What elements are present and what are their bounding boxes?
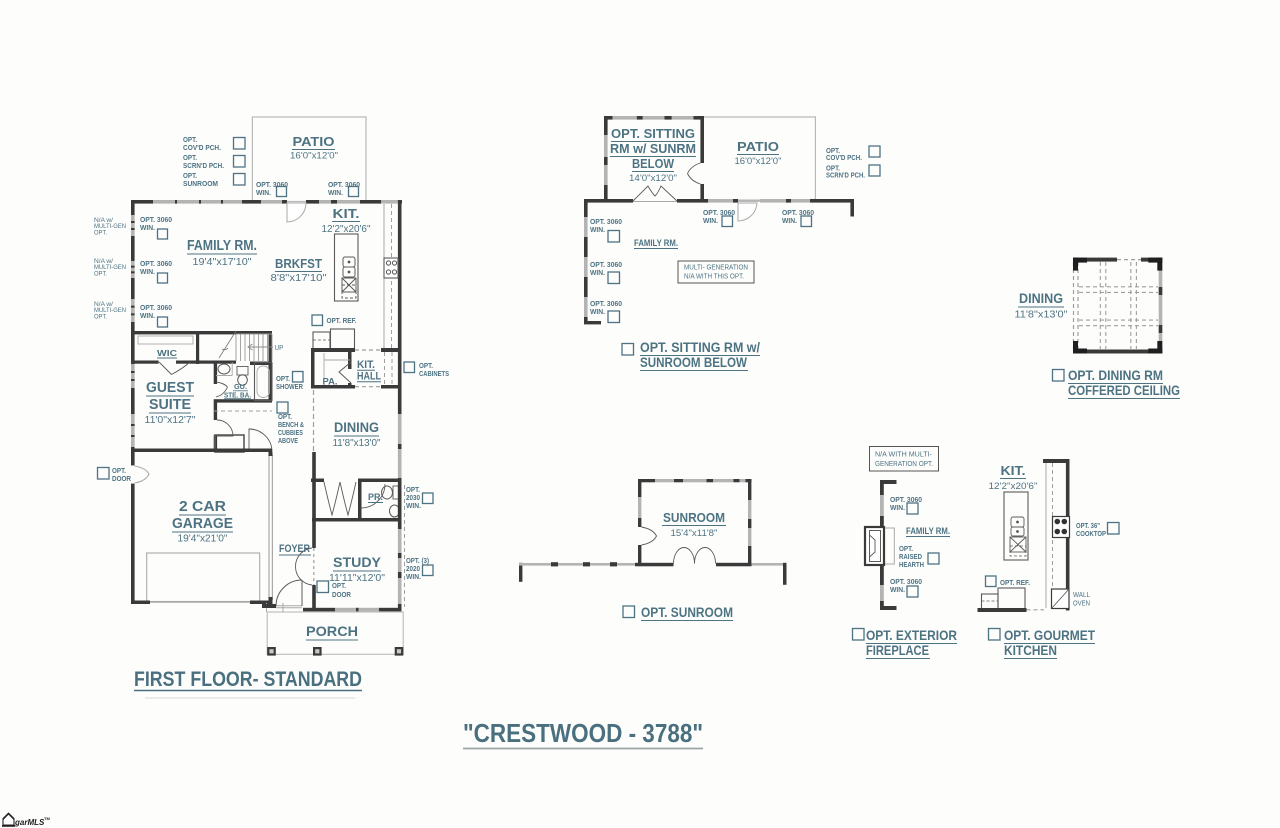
svg-text:OPT.: OPT.: [332, 581, 346, 590]
svg-text:STE. BA.: STE. BA.: [224, 390, 251, 399]
svg-text:FOYER: FOYER: [279, 543, 310, 555]
svg-text:PATIO: PATIO: [293, 134, 335, 149]
svg-text:FAMILY RM.: FAMILY RM.: [634, 238, 678, 249]
svg-text:COOKTOP: COOKTOP: [1076, 529, 1106, 538]
svg-text:WIN.: WIN.: [328, 188, 343, 197]
svg-text:WIN.: WIN.: [890, 503, 905, 512]
svg-text:WIN.: WIN.: [406, 572, 421, 581]
svg-text:OPT. REF.: OPT. REF.: [1000, 578, 1030, 587]
svg-text:"CRESTWOOD - 3788": "CRESTWOOD - 3788": [463, 718, 703, 748]
svg-text:CABINETS: CABINETS: [419, 369, 449, 378]
svg-text:WIN.: WIN.: [140, 267, 155, 276]
svg-text:DOOR: DOOR: [332, 590, 351, 599]
svg-text:WIN.: WIN.: [590, 268, 605, 277]
svg-text:N/A WITH MULTI-: N/A WITH MULTI-: [875, 452, 933, 459]
svg-text:HEARTH: HEARTH: [899, 560, 924, 569]
svg-text:OPT.: OPT.: [94, 313, 107, 320]
svg-text:PR.: PR.: [368, 492, 383, 502]
svg-text:COV'D PCH.: COV'D PCH.: [826, 153, 862, 162]
svg-text:COV'D PCH.: COV'D PCH.: [183, 143, 221, 152]
svg-text:OPT. EXTERIOR: OPT. EXTERIOR: [866, 627, 957, 643]
svg-text:BELOW: BELOW: [632, 156, 675, 171]
svg-text:SCRN'D PCH.: SCRN'D PCH.: [826, 171, 865, 180]
svg-text:PATIO: PATIO: [737, 139, 779, 154]
svg-text:SHOWER: SHOWER: [276, 382, 303, 391]
svg-text:FIREPLACE: FIREPLACE: [866, 642, 929, 658]
svg-text:DINING: DINING: [1019, 290, 1063, 306]
svg-text:RM w/ SUNRM: RM w/ SUNRM: [610, 141, 696, 156]
svg-text:WIN.: WIN.: [406, 501, 421, 510]
svg-text:FAMILY RM.: FAMILY RM.: [906, 526, 950, 537]
svg-text:8'8"x17'10": 8'8"x17'10": [271, 273, 328, 284]
svg-text:KIT.: KIT.: [357, 359, 375, 371]
svg-text:garMLS: garMLS: [14, 818, 45, 827]
svg-text:TM: TM: [44, 816, 50, 821]
svg-text:SUNROOM BELOW: SUNROOM BELOW: [640, 355, 747, 370]
svg-text:GENERATION OPT.: GENERATION OPT.: [875, 461, 933, 468]
svg-text:WIN.: WIN.: [703, 216, 718, 225]
svg-text:15'4"x11'8": 15'4"x11'8": [671, 528, 718, 539]
svg-text:GARAGE: GARAGE: [172, 516, 233, 532]
svg-text:11'8"x13'0": 11'8"x13'0": [333, 438, 381, 449]
svg-text:SCRN'D PCH.: SCRN'D PCH.: [183, 161, 224, 170]
svg-text:ABOVE: ABOVE: [278, 436, 298, 445]
svg-text:WIN.: WIN.: [140, 223, 155, 232]
svg-text:KIT.: KIT.: [333, 207, 360, 221]
svg-text:FIRST FLOOR- STANDARD: FIRST FLOOR- STANDARD: [134, 668, 362, 691]
svg-text:KIT.: KIT.: [1001, 463, 1026, 478]
svg-text:COFFERED CEILING: COFFERED CEILING: [1068, 382, 1180, 398]
svg-text:OPT. REF.: OPT. REF.: [327, 316, 357, 325]
svg-text:OVEN: OVEN: [1073, 599, 1090, 608]
svg-text:WIN.: WIN.: [590, 307, 605, 316]
svg-text:19'4"x21'0": 19'4"x21'0": [178, 534, 228, 545]
svg-text:11'8"x13'0": 11'8"x13'0": [1015, 310, 1068, 321]
svg-text:HALL: HALL: [357, 371, 381, 383]
svg-text:WIN.: WIN.: [782, 216, 797, 225]
svg-text:WIC: WIC: [157, 348, 177, 358]
svg-text:MULTI- GENERATION: MULTI- GENERATION: [684, 265, 748, 272]
svg-text:BRKFST: BRKFST: [275, 257, 322, 271]
svg-text:N/A WITH THIS OPT.: N/A WITH THIS OPT.: [684, 274, 744, 281]
svg-text:KITCHEN: KITCHEN: [1004, 642, 1057, 658]
svg-text:WIN.: WIN.: [890, 585, 905, 594]
svg-text:16'0"x12'0": 16'0"x12'0": [735, 156, 782, 167]
svg-text:2 CAR: 2 CAR: [179, 499, 227, 515]
svg-text:OPT. SITTING: OPT. SITTING: [611, 126, 695, 141]
svg-text:11'0"x12'7": 11'0"x12'7": [145, 415, 196, 426]
svg-text:19'4"x17'10": 19'4"x17'10": [193, 257, 252, 268]
svg-text:OPT. DINING RM: OPT. DINING RM: [1068, 367, 1163, 383]
svg-text:12'2"x20'6": 12'2"x20'6": [322, 224, 371, 235]
svg-text:PORCH: PORCH: [306, 623, 358, 639]
svg-text:WIN.: WIN.: [140, 311, 155, 320]
svg-text:OPT. GOURMET: OPT. GOURMET: [1004, 627, 1095, 643]
svg-text:OPT.: OPT.: [94, 270, 107, 277]
svg-text:UP: UP: [275, 345, 284, 352]
svg-text:OPT.: OPT.: [94, 229, 107, 236]
svg-text:STUDY: STUDY: [333, 554, 382, 570]
svg-text:SUNROOM: SUNROOM: [183, 179, 218, 188]
svg-text:SUNROOM: SUNROOM: [663, 510, 725, 525]
svg-text:FAMILY RM.: FAMILY RM.: [187, 238, 257, 254]
svg-text:DINING: DINING: [334, 419, 379, 435]
svg-text:OPT. SUNROOM: OPT. SUNROOM: [641, 605, 733, 620]
svg-text:WIN.: WIN.: [256, 188, 271, 197]
svg-text:16'0"x12'0": 16'0"x12'0": [290, 151, 338, 162]
svg-text:WIN.: WIN.: [590, 225, 605, 234]
svg-text:SUITE: SUITE: [149, 397, 191, 413]
svg-text:12'2"x20'6": 12'2"x20'6": [989, 481, 1038, 492]
svg-text:14'0"x12'0": 14'0"x12'0": [629, 173, 677, 184]
svg-text:GUEST: GUEST: [146, 380, 194, 396]
svg-text:DOOR: DOOR: [112, 474, 131, 483]
svg-text:OPT. SITTING RM w/: OPT. SITTING RM w/: [640, 340, 760, 355]
